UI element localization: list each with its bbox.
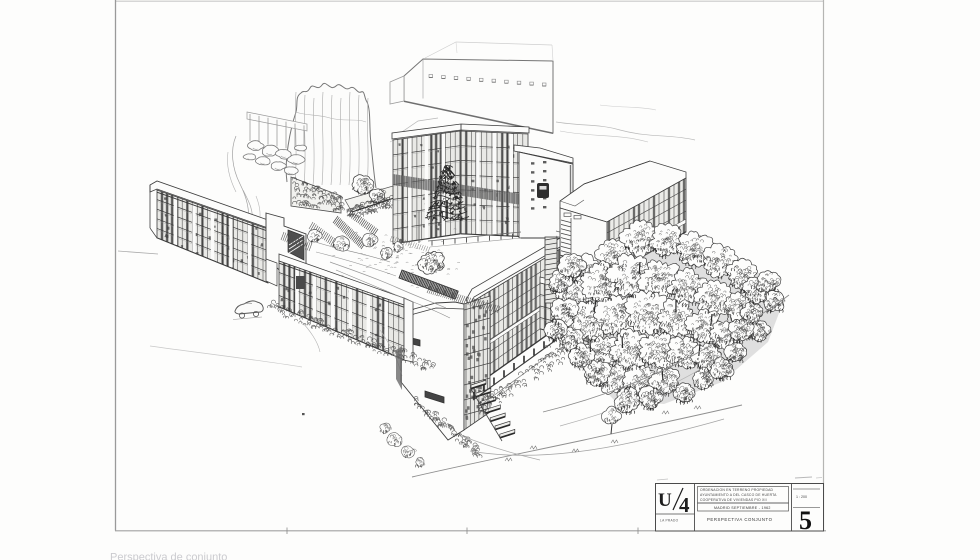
svg-text:4: 4 <box>679 493 690 517</box>
svg-text:AYUNTAMIENTO A DEL CASCO DE HU: AYUNTAMIENTO A DEL CASCO DE HUERTA <box>700 493 777 497</box>
svg-text:Perspectiva de conjunto: Perspectiva de conjunto <box>110 552 227 560</box>
svg-text:U: U <box>658 490 672 511</box>
svg-text:5: 5 <box>799 506 812 535</box>
svg-text:ORDENACION EN TERRENO PROPIEDA: ORDENACION EN TERRENO PROPIEDAD <box>700 488 774 492</box>
svg-text:PERSPECTIVA CONJUNTO: PERSPECTIVA CONJUNTO <box>707 517 773 522</box>
svg-text:1 : 200: 1 : 200 <box>796 495 807 499</box>
svg-text:COOPERATIVA DE VIVIENDAS PIO X: COOPERATIVA DE VIVIENDAS PIO XII <box>700 498 767 502</box>
svg-text:MADRID SEPTIEMBRE - 1962: MADRID SEPTIEMBRE - 1962 <box>714 506 771 510</box>
svg-text:LA PRADO: LA PRADO <box>660 519 679 523</box>
